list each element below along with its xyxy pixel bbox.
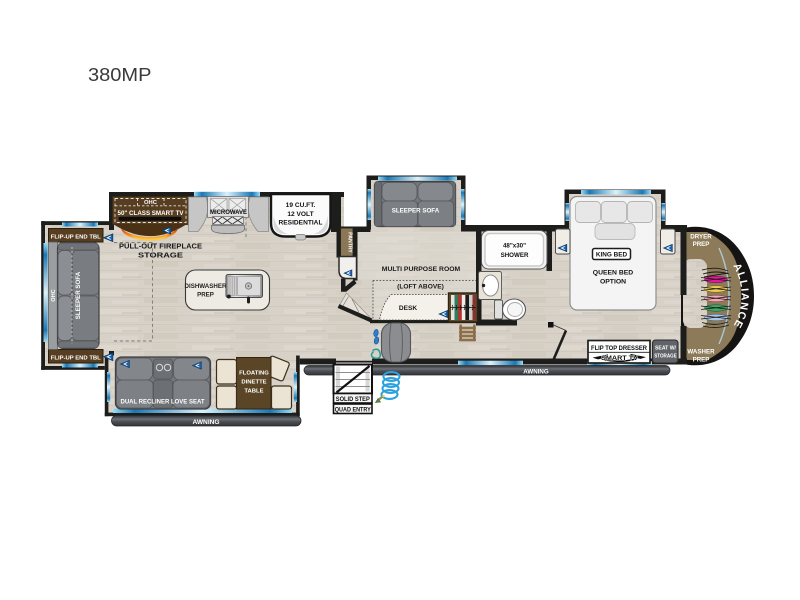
svg-text:DISHWASHER: DISHWASHER (185, 283, 227, 290)
svg-text:QUAD ENTRY: QUAD ENTRY (335, 407, 372, 414)
svg-text:SLEEPER SOFA: SLEEPER SOFA (392, 208, 440, 215)
svg-text:SHOWER: SHOWER (501, 252, 529, 259)
svg-text:RESIDENTIAL: RESIDENTIAL (279, 220, 323, 227)
svg-text:WASHER: WASHER (687, 349, 715, 356)
svg-text:PULL-OUT FIREPLACE: PULL-OUT FIREPLACE (119, 242, 202, 251)
svg-text:STORAGE: STORAGE (654, 353, 677, 359)
svg-text:SOLID STEP: SOLID STEP (336, 396, 370, 403)
svg-text:DINETTE: DINETTE (241, 380, 266, 386)
svg-text:380MP: 380MP (88, 64, 152, 85)
svg-text:SLEEPER SOFA: SLEEPER SOFA (75, 271, 82, 319)
svg-text:MULTI PURPOSE ROOM: MULTI PURPOSE ROOM (382, 266, 461, 273)
svg-text:PREP: PREP (693, 241, 710, 248)
svg-text:SEAT W/: SEAT W/ (655, 345, 676, 351)
svg-text:AWNING: AWNING (523, 369, 549, 376)
svg-text:FLOATING: FLOATING (239, 371, 269, 377)
svg-text:FLIP TOP DRESSER: FLIP TOP DRESSER (591, 345, 647, 352)
svg-text:19 CU.FT.: 19 CU.FT. (286, 202, 316, 209)
svg-text:KING BED: KING BED (596, 252, 628, 259)
svg-text:DRYER: DRYER (690, 234, 712, 241)
svg-text:OHC: OHC (51, 289, 57, 301)
svg-text:TABLE: TABLE (244, 389, 263, 395)
svg-text:50" CLASS SMART TV: 50" CLASS SMART TV (118, 210, 185, 217)
svg-text:FLIP-UP END TBL: FLIP-UP END TBL (51, 234, 102, 240)
svg-text:(LOFT ABOVE): (LOFT ABOVE) (397, 284, 444, 291)
svg-text:PREP: PREP (197, 292, 214, 299)
svg-text:48"x30": 48"x30" (503, 243, 526, 250)
svg-text:OPTION: OPTION (600, 279, 626, 286)
svg-text:DESK: DESK (399, 305, 418, 312)
svg-text:SMART TV: SMART TV (601, 355, 639, 362)
svg-text:MICROWAVE: MICROWAVE (210, 209, 248, 216)
svg-text:12 VOLT: 12 VOLT (287, 211, 313, 218)
svg-text:PANTRY: PANTRY (347, 232, 353, 253)
svg-text:STORAGE: STORAGE (138, 250, 183, 259)
svg-text:AWNING: AWNING (192, 419, 219, 426)
svg-text:DUAL RECLINER LOVE SEAT: DUAL RECLINER LOVE SEAT (121, 399, 205, 406)
svg-text:QUEEN BED: QUEEN BED (593, 270, 634, 277)
svg-text:PREP: PREP (693, 357, 710, 364)
svg-text:OHC: OHC (144, 200, 158, 206)
svg-text:FLIP-UP END TBL: FLIP-UP END TBL (51, 355, 102, 361)
